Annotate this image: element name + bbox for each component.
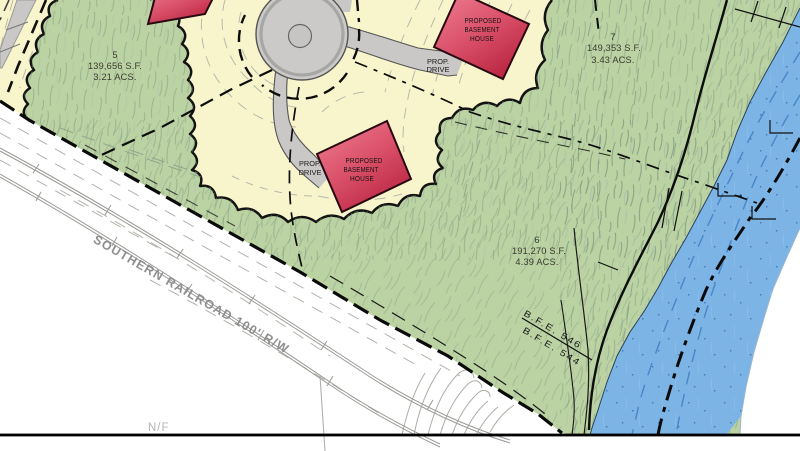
svg-text:6: 6 [534, 235, 539, 245]
svg-text:PROPOSED: PROPOSED [465, 16, 502, 25]
svg-text:3.43 ACS.: 3.43 ACS. [591, 55, 634, 65]
svg-text:3.21 ACS.: 3.21 ACS. [93, 72, 136, 82]
svg-text:7: 7 [610, 32, 615, 42]
svg-text:4.39 ACS.: 4.39 ACS. [515, 257, 558, 267]
svg-text:HOUSE: HOUSE [350, 174, 374, 183]
svg-text:DRIVE: DRIVE [427, 65, 450, 74]
svg-text:PROPOSED: PROPOSED [346, 156, 383, 165]
svg-text:BASEMENT: BASEMENT [465, 25, 500, 34]
svg-text:191,270 S.F.: 191,270 S.F. [512, 246, 566, 256]
svg-text:DRIVE: DRIVE [299, 168, 322, 177]
svg-text:BASEMENT: BASEMENT [344, 165, 379, 174]
svg-text:N/F: N/F [148, 422, 170, 434]
svg-text:HOUSE: HOUSE [470, 34, 494, 43]
svg-text:5: 5 [112, 50, 117, 60]
svg-text:139,656 S.F.: 139,656 S.F. [88, 61, 142, 71]
svg-text:PROP.: PROP. [299, 159, 321, 168]
svg-text:149,353 S.F.: 149,353 S.F. [587, 43, 641, 53]
